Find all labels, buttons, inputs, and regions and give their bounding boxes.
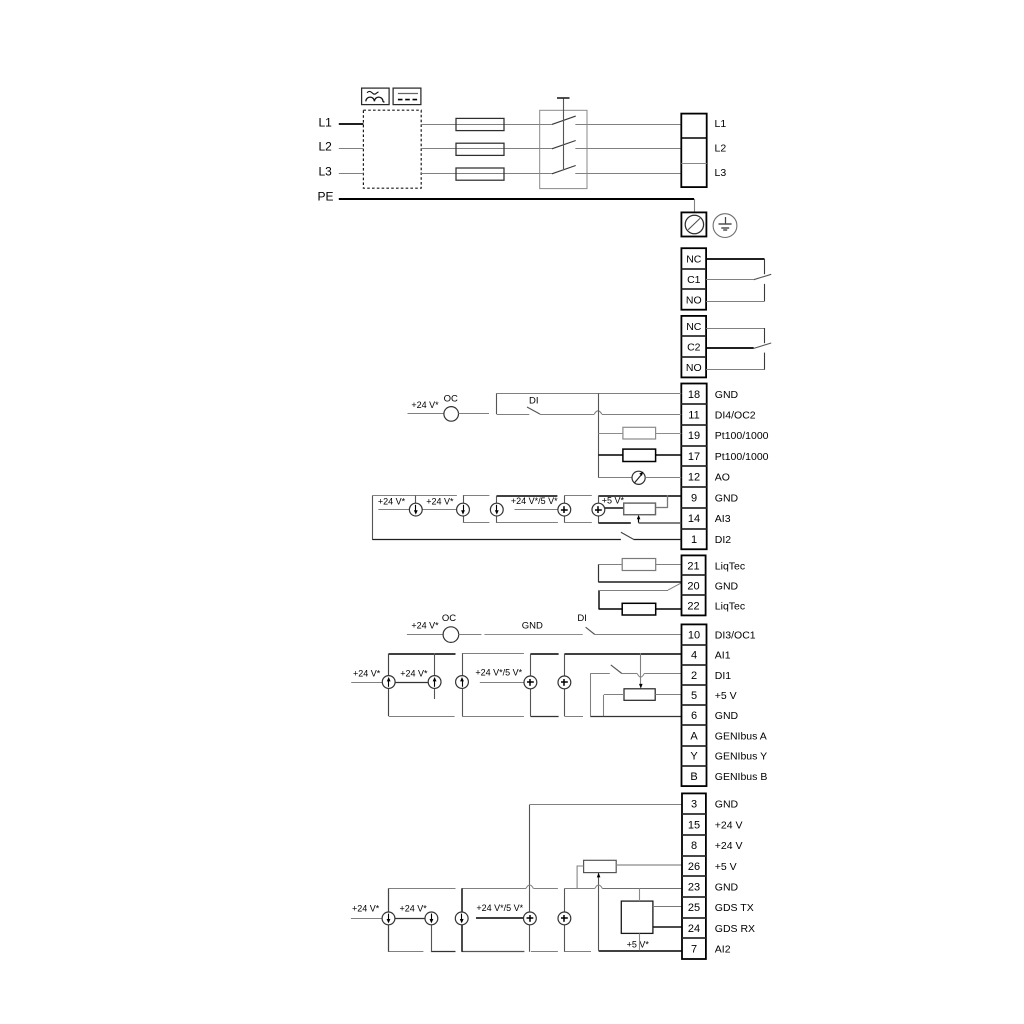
svg-text:AO: AO [715, 472, 730, 484]
svg-text:9: 9 [691, 492, 697, 504]
svg-text:3: 3 [691, 799, 697, 811]
svg-text:+24 V*: +24 V* [426, 496, 454, 506]
svg-text:6: 6 [691, 710, 697, 722]
svg-text:DI2: DI2 [715, 534, 732, 546]
svg-text:GDS TX: GDS TX [715, 902, 754, 914]
svg-text:+24 V*/5 V*: +24 V*/5 V* [476, 903, 523, 913]
svg-text:2: 2 [691, 670, 697, 682]
svg-text:NC: NC [686, 253, 702, 265]
svg-text:LiqTec: LiqTec [715, 560, 745, 572]
svg-text:+5 V*: +5 V* [627, 940, 650, 950]
svg-text:GND: GND [715, 710, 739, 722]
svg-text:Pt100/1000: Pt100/1000 [715, 451, 769, 463]
svg-text:NO: NO [686, 362, 702, 374]
svg-text:GND: GND [715, 492, 739, 504]
svg-text:+24 V: +24 V [715, 819, 743, 831]
svg-text:L1: L1 [319, 115, 333, 129]
svg-text:DI4/OC2: DI4/OC2 [715, 409, 756, 421]
svg-text:DI1: DI1 [715, 670, 732, 682]
svg-text:GND: GND [715, 799, 739, 811]
svg-text:+24 V: +24 V [715, 840, 743, 852]
svg-text:DI3/OC1: DI3/OC1 [715, 629, 756, 641]
svg-text:C1: C1 [687, 274, 701, 286]
svg-text:AI2: AI2 [715, 944, 731, 956]
svg-text:B: B [690, 771, 697, 783]
svg-text:+5 V*: +5 V* [602, 496, 625, 506]
svg-text:GENIbus A: GENIbus A [715, 730, 767, 742]
svg-text:8: 8 [691, 840, 697, 852]
svg-text:+24 V*: +24 V* [353, 669, 381, 679]
svg-text:AI3: AI3 [715, 513, 731, 525]
svg-text:26: 26 [688, 861, 700, 873]
svg-text:4: 4 [691, 650, 697, 662]
svg-text:22: 22 [687, 600, 699, 612]
svg-text:AI1: AI1 [715, 650, 731, 662]
svg-text:1: 1 [691, 534, 697, 546]
svg-text:17: 17 [688, 451, 700, 463]
svg-text:Y: Y [690, 751, 698, 763]
svg-text:OC: OC [444, 393, 458, 404]
svg-text:+24 V*: +24 V* [411, 621, 439, 631]
svg-text:12: 12 [688, 472, 700, 484]
svg-text:+24 V*: +24 V* [400, 904, 428, 914]
svg-text:19: 19 [688, 430, 700, 442]
svg-text:+24 V*/5 V*: +24 V*/5 V* [475, 668, 522, 678]
svg-text:GND: GND [715, 389, 739, 401]
svg-text:20: 20 [687, 580, 699, 592]
svg-text:+24 V*: +24 V* [411, 400, 439, 410]
svg-text:14: 14 [688, 513, 700, 525]
svg-text:L1: L1 [715, 118, 727, 130]
svg-text:+5 V: +5 V [715, 690, 737, 702]
svg-text:11: 11 [688, 409, 699, 421]
svg-text:GND: GND [522, 621, 543, 632]
svg-text:GENIbus Y: GENIbus Y [715, 751, 767, 763]
svg-text:Pt100/1000: Pt100/1000 [715, 430, 769, 442]
svg-text:23: 23 [688, 881, 700, 893]
svg-text:5: 5 [691, 690, 697, 702]
svg-text:+24 V*: +24 V* [378, 496, 406, 506]
svg-text:LiqTec: LiqTec [715, 600, 745, 612]
svg-text:OC: OC [442, 613, 456, 624]
svg-text:L2: L2 [319, 140, 333, 154]
svg-text:L2: L2 [715, 143, 727, 155]
svg-text:GND: GND [715, 580, 739, 592]
svg-text:18: 18 [688, 389, 700, 401]
svg-text:GENIbus B: GENIbus B [715, 771, 768, 783]
svg-text:C2: C2 [687, 341, 701, 353]
svg-text:L3: L3 [715, 167, 727, 179]
svg-text:+24 V*: +24 V* [352, 904, 380, 914]
svg-text:25: 25 [688, 902, 700, 914]
svg-text:+24 V*: +24 V* [400, 669, 428, 679]
svg-text:7: 7 [691, 944, 697, 956]
svg-text:DI: DI [529, 395, 539, 406]
svg-text:10: 10 [688, 629, 700, 641]
svg-text:21: 21 [687, 560, 699, 572]
svg-text:GDS RX: GDS RX [715, 923, 755, 935]
svg-text:NO: NO [686, 294, 702, 306]
svg-text:GND: GND [715, 881, 739, 893]
svg-text:15: 15 [688, 819, 700, 831]
svg-text:PE: PE [318, 189, 334, 203]
svg-text:A: A [690, 730, 698, 742]
svg-text:DI: DI [577, 613, 587, 624]
svg-text:+24 V*/5 V*: +24 V*/5 V* [511, 496, 558, 506]
svg-text:NC: NC [686, 321, 702, 333]
svg-text:24: 24 [688, 923, 700, 935]
svg-text:+5 V: +5 V [715, 861, 737, 873]
svg-text:L3: L3 [319, 164, 333, 178]
